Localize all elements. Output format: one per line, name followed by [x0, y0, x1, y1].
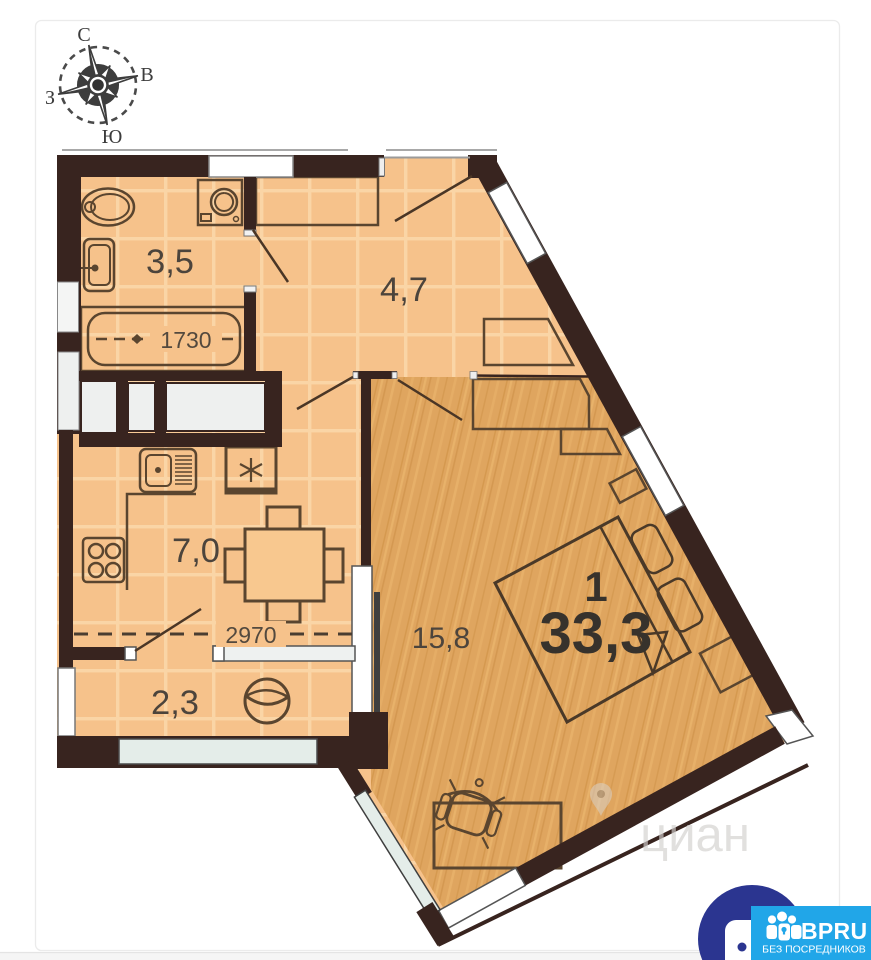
svg-text:7,0: 7,0 [172, 532, 220, 570]
svg-text:15,8: 15,8 [412, 622, 470, 655]
svg-text:С: С [77, 24, 90, 46]
svg-text:BPRU: BPRU [801, 918, 867, 944]
svg-text:Ю: Ю [102, 126, 123, 148]
svg-text:1730: 1730 [160, 327, 211, 353]
svg-text:БЕЗ ПОСРЕДНИКОВ: БЕЗ ПОСРЕДНИКОВ [762, 944, 866, 956]
svg-text:33,3: 33,3 [540, 601, 653, 666]
svg-text:2970: 2970 [225, 622, 276, 648]
svg-text:4,7: 4,7 [380, 271, 428, 309]
svg-text:циан: циан [640, 808, 750, 862]
svg-text:В: В [140, 64, 153, 86]
svg-text:З: З [45, 87, 55, 109]
svg-text:3,5: 3,5 [146, 243, 194, 281]
svg-text:2,3: 2,3 [151, 684, 199, 722]
